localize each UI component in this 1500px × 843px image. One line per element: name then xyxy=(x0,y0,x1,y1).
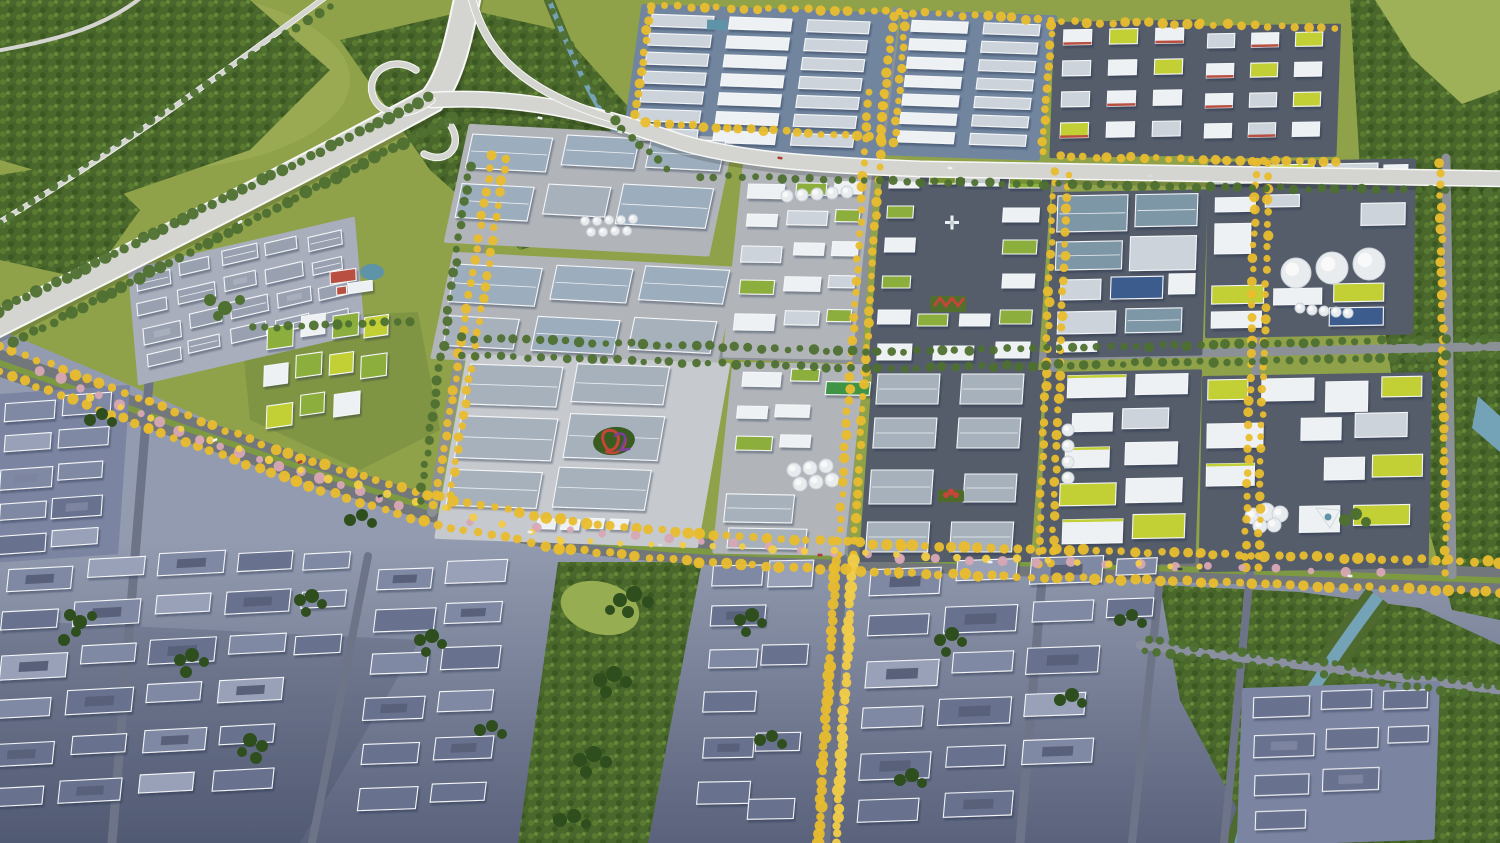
campus-pond xyxy=(360,264,384,280)
rooftop-pool xyxy=(1325,514,1332,521)
masterplan-rendering xyxy=(0,0,1500,843)
red-garden-sculpture-icon xyxy=(938,489,964,503)
warehouse-pond xyxy=(707,20,727,31)
wave-sculpture-icon xyxy=(930,296,966,312)
aerial-rendering-stage xyxy=(0,0,1500,843)
